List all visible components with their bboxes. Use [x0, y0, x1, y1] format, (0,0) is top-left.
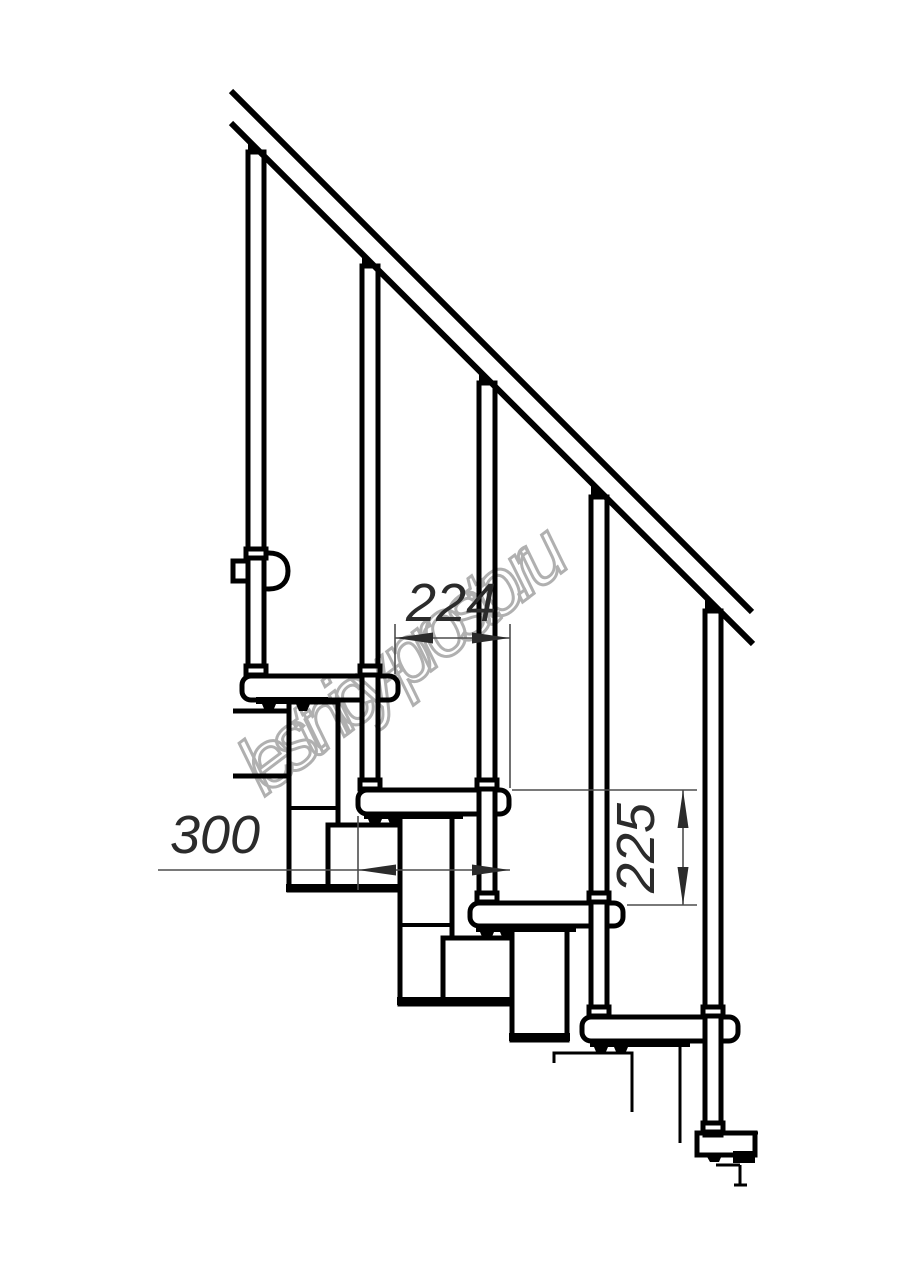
staircase-drawing: lestnicy-prosto.ru 224 300 225 — [0, 0, 914, 1280]
module-box-1 — [328, 825, 405, 890]
baluster-1 — [248, 152, 264, 676]
module-base-3 — [509, 1033, 570, 1041]
baluster-4 — [591, 497, 607, 1017]
dim-225-label: 225 — [606, 802, 666, 894]
dim-300-label: 300 — [170, 805, 260, 865]
baluster-5 — [705, 611, 721, 1135]
dim-225-arrow-down — [678, 867, 689, 905]
module-outline-lines — [554, 1053, 632, 1112]
dim-225-arrow-up — [678, 790, 689, 828]
connector-tread-5 — [590, 1040, 690, 1054]
lower-step-lines — [716, 1165, 747, 1185]
module-riser-3 — [512, 925, 567, 1040]
dim-224-label: 224 — [405, 573, 496, 633]
module-box-2 — [443, 938, 517, 1004]
